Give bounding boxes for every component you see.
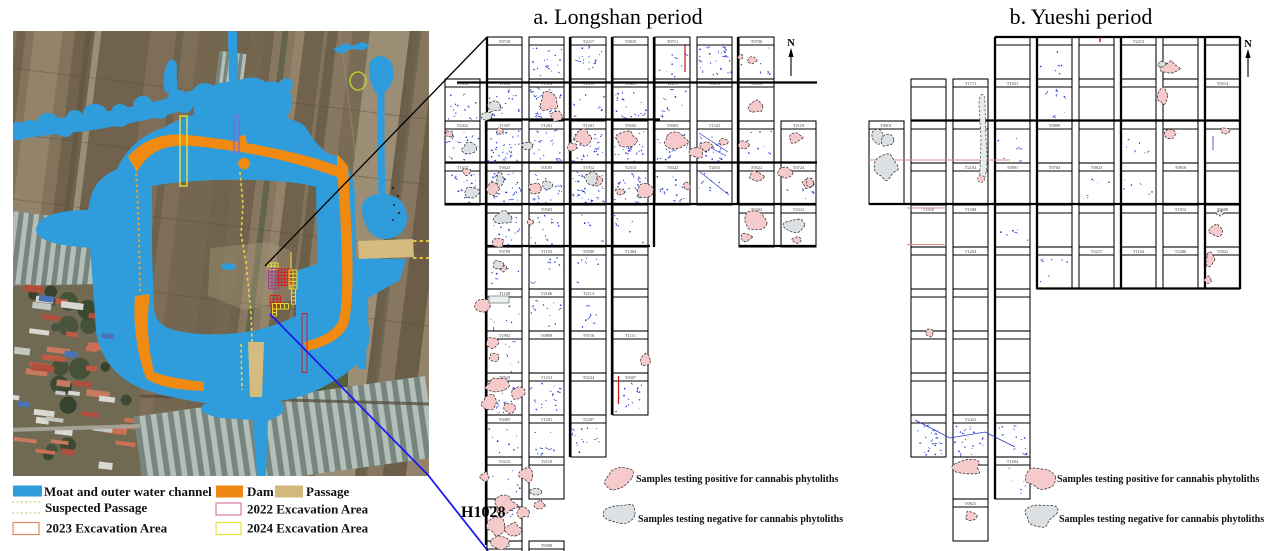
- svg-text:T2213: T2213: [1133, 39, 1145, 44]
- svg-text:T1201: T1201: [541, 417, 552, 422]
- svg-text:Samples testing negative for c: Samples testing negative for cannabis ph…: [638, 514, 843, 525]
- svg-text:T1902: T1902: [499, 333, 510, 338]
- svg-text:Passage: Passage: [306, 484, 350, 499]
- svg-text:T0823: T0823: [1091, 165, 1103, 170]
- svg-text:T1103: T1103: [541, 249, 553, 254]
- svg-text:T1912: T1912: [583, 165, 594, 170]
- svg-text:T1201: T1201: [583, 123, 594, 128]
- svg-text:T1621: T1621: [1007, 81, 1018, 86]
- svg-text:Dam: Dam: [247, 484, 274, 499]
- svg-text:T0621: T0621: [965, 501, 976, 506]
- svg-text:Samples testing positive for c: Samples testing positive for cannabis ph…: [1057, 474, 1259, 485]
- svg-text:T2315: T2315: [625, 165, 637, 170]
- svg-text:N: N: [787, 38, 795, 49]
- svg-text:T2118: T2118: [541, 459, 553, 464]
- svg-text:T0514: T0514: [1217, 81, 1229, 86]
- svg-text:T0903: T0903: [667, 123, 679, 128]
- svg-text:T2217: T2217: [583, 39, 595, 44]
- svg-text:T2406: T2406: [1175, 249, 1187, 254]
- svg-text:T0422: T0422: [667, 165, 678, 170]
- svg-text:T2113: T2113: [583, 291, 595, 296]
- svg-text:T0224: T0224: [583, 375, 595, 380]
- svg-text:T1108: T1108: [499, 291, 511, 296]
- svg-text:H1028: H1028: [461, 504, 505, 521]
- svg-text:T0901: T0901: [1007, 165, 1018, 170]
- svg-text:T1111: T1111: [625, 333, 636, 338]
- svg-text:2023 Excavation Area: 2023 Excavation Area: [46, 521, 168, 536]
- svg-text:T1213: T1213: [541, 375, 553, 380]
- svg-text:T0502: T0502: [625, 123, 636, 128]
- svg-text:Samples testing negative for c: Samples testing negative for cannabis ph…: [1059, 514, 1264, 525]
- svg-text:T2106: T2106: [541, 291, 553, 296]
- svg-text:T1201: T1201: [541, 123, 552, 128]
- svg-text:T0509: T0509: [583, 249, 595, 254]
- svg-text:T0901: T0901: [880, 123, 891, 128]
- svg-text:T1322: T1322: [709, 123, 720, 128]
- svg-text:T2015: T2015: [709, 165, 721, 170]
- svg-text:T0810: T0810: [625, 39, 637, 44]
- svg-text:T0405: T0405: [499, 417, 511, 422]
- svg-text:T0623: T0623: [499, 165, 511, 170]
- svg-text:T0908: T0908: [541, 543, 553, 548]
- svg-text:T0307: T0307: [625, 375, 637, 380]
- svg-text:T1104: T1104: [1133, 249, 1145, 254]
- svg-text:2024 Excavation Area: 2024 Excavation Area: [247, 521, 369, 536]
- svg-text:T2119: T2119: [793, 123, 805, 128]
- svg-text:a. Longshan period: a. Longshan period: [533, 4, 702, 29]
- svg-text:T2421: T2421: [965, 417, 976, 422]
- svg-text:T2312: T2312: [793, 207, 804, 212]
- svg-text:T0718: T0718: [583, 333, 595, 338]
- svg-text:T0704: T0704: [1049, 165, 1061, 170]
- svg-text:T0810: T0810: [1175, 165, 1187, 170]
- svg-text:T0718: T0718: [499, 39, 511, 44]
- svg-text:T0724: T0724: [793, 165, 805, 170]
- svg-text:T0522: T0522: [751, 165, 762, 170]
- svg-text:Moat and outer water channel: Moat and outer water channel: [44, 484, 212, 499]
- svg-text:T0503: T0503: [541, 207, 553, 212]
- svg-text:T2022: T2022: [1217, 249, 1228, 254]
- svg-text:T2212: T2212: [499, 459, 510, 464]
- svg-text:T1507: T1507: [499, 123, 511, 128]
- svg-text:T0711: T0711: [667, 39, 678, 44]
- svg-text:T0809: T0809: [1049, 123, 1061, 128]
- svg-text:T2422: T2422: [457, 123, 468, 128]
- svg-text:b. Yueshi period: b. Yueshi period: [1010, 4, 1153, 29]
- svg-text:T1912: T1912: [1175, 207, 1186, 212]
- svg-text:T1711: T1711: [965, 81, 976, 86]
- svg-text:T1604: T1604: [1007, 459, 1019, 464]
- svg-text:Suspected Passage: Suspected Passage: [45, 500, 147, 515]
- svg-text:2022 Excavation Area: 2022 Excavation Area: [247, 502, 369, 517]
- svg-text:T1404: T1404: [625, 249, 637, 254]
- svg-text:T0706: T0706: [751, 39, 763, 44]
- svg-text:T1204: T1204: [965, 249, 977, 254]
- svg-text:T2104: T2104: [965, 165, 977, 170]
- svg-text:Samples testing positive for c: Samples testing positive for cannabis ph…: [636, 474, 838, 485]
- svg-text:T2207: T2207: [583, 417, 595, 422]
- svg-text:T1508: T1508: [965, 207, 977, 212]
- svg-text:T0103: T0103: [541, 165, 553, 170]
- svg-text:T2217: T2217: [1091, 249, 1103, 254]
- svg-text:N: N: [1244, 39, 1252, 50]
- svg-text:T0809: T0809: [541, 333, 553, 338]
- svg-text:T0709: T0709: [499, 249, 511, 254]
